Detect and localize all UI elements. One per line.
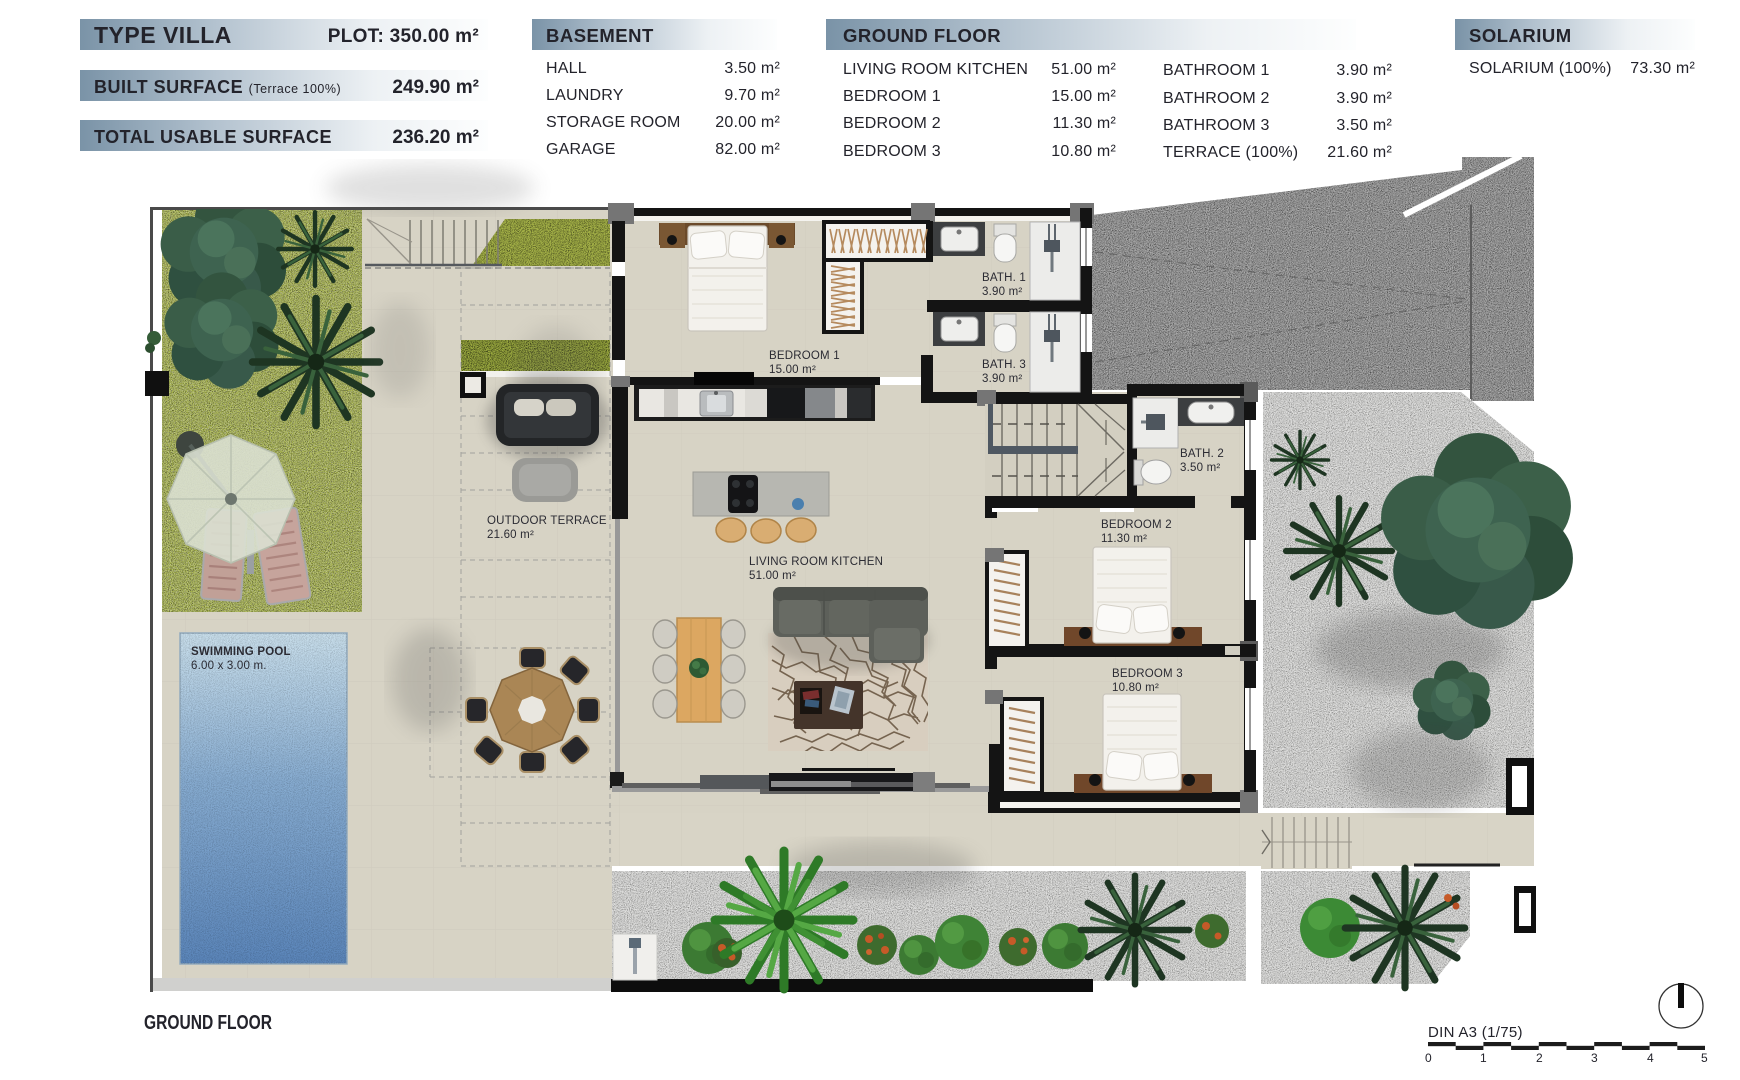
svg-text:20.00 m²: 20.00 m² xyxy=(715,114,780,131)
svg-text:BEDROOM 3: BEDROOM 3 xyxy=(1112,668,1183,680)
svg-text:249.90 m²: 249.90 m² xyxy=(392,77,479,98)
svg-text:3.50 m²: 3.50 m² xyxy=(1336,117,1392,134)
svg-text:LIVING ROOM KITCHEN: LIVING ROOM KITCHEN xyxy=(843,61,1028,78)
svg-text:GROUND FLOOR: GROUND FLOOR xyxy=(843,25,1001,46)
svg-text:BEDROOM 3: BEDROOM 3 xyxy=(843,143,941,160)
svg-text:4: 4 xyxy=(1647,1051,1654,1065)
svg-text:DIN A3 (1/75): DIN A3 (1/75) xyxy=(1428,1024,1523,1041)
svg-text:21.60 m²: 21.60 m² xyxy=(487,529,534,541)
svg-text:HALL: HALL xyxy=(546,60,587,77)
svg-text:BASEMENT: BASEMENT xyxy=(546,25,654,46)
svg-text:SOLARIUM (100%): SOLARIUM (100%) xyxy=(1469,60,1612,77)
svg-text:BATHROOM 2: BATHROOM 2 xyxy=(1163,90,1270,107)
svg-text:BEDROOM 2: BEDROOM 2 xyxy=(1101,519,1172,531)
svg-text:51.00 m²: 51.00 m² xyxy=(1051,61,1116,78)
svg-text:11.30 m²: 11.30 m² xyxy=(1101,533,1147,545)
svg-text:236.20 m²: 236.20 m² xyxy=(392,127,479,148)
svg-text:21.60 m²: 21.60 m² xyxy=(1327,144,1392,161)
svg-text:SOLARIUM: SOLARIUM xyxy=(1469,25,1572,46)
svg-text:BATH. 1: BATH. 1 xyxy=(982,272,1026,284)
svg-text:15.00 m²: 15.00 m² xyxy=(1051,88,1116,105)
svg-text:6.00 x 3.00 m.: 6.00 x 3.00 m. xyxy=(191,660,267,672)
svg-text:STORAGE ROOM: STORAGE ROOM xyxy=(546,114,681,131)
svg-text:1: 1 xyxy=(1480,1051,1487,1065)
svg-text:3.90 m²: 3.90 m² xyxy=(982,286,1022,298)
svg-text:BEDROOM 2: BEDROOM 2 xyxy=(843,115,941,132)
svg-text:TOTAL USABLE SURFACE: TOTAL USABLE SURFACE xyxy=(94,127,332,147)
svg-text:5: 5 xyxy=(1701,1051,1708,1065)
svg-text:82.00 m²: 82.00 m² xyxy=(715,141,780,158)
svg-text:TERRACE (100%): TERRACE (100%) xyxy=(1163,144,1298,161)
svg-text:51.00 m²: 51.00 m² xyxy=(749,570,796,582)
svg-text:BATH. 2: BATH. 2 xyxy=(1180,448,1224,460)
svg-text:3.90 m²: 3.90 m² xyxy=(982,373,1022,385)
svg-text:0: 0 xyxy=(1425,1051,1432,1065)
svg-text:3.50 m²: 3.50 m² xyxy=(1180,462,1220,474)
svg-text:LAUNDRY: LAUNDRY xyxy=(546,87,624,104)
svg-text:BATHROOM 1: BATHROOM 1 xyxy=(1163,62,1270,79)
svg-text:PLOT: 350.00 m²: PLOT: 350.00 m² xyxy=(328,26,479,47)
svg-text:3.90 m²: 3.90 m² xyxy=(1336,62,1392,79)
svg-text:BEDROOM 1: BEDROOM 1 xyxy=(843,88,941,105)
svg-text:10.80 m²: 10.80 m² xyxy=(1112,682,1159,694)
svg-text:2: 2 xyxy=(1536,1051,1543,1065)
svg-text:LIVING ROOM KITCHEN: LIVING ROOM KITCHEN xyxy=(749,556,883,568)
svg-text:BEDROOM 1: BEDROOM 1 xyxy=(769,350,840,362)
svg-text:11.30 m²: 11.30 m² xyxy=(1052,115,1116,132)
svg-text:BATH. 3: BATH. 3 xyxy=(982,359,1026,371)
svg-text:3.50 m²: 3.50 m² xyxy=(724,60,780,77)
svg-text:GROUND FLOOR: GROUND FLOOR xyxy=(144,1012,272,1034)
svg-text:9.70 m²: 9.70 m² xyxy=(724,87,780,104)
svg-text:3.90 m²: 3.90 m² xyxy=(1336,90,1392,107)
svg-text:GARAGE: GARAGE xyxy=(546,141,616,158)
svg-text:10.80 m²: 10.80 m² xyxy=(1051,143,1116,160)
svg-text:15.00 m²: 15.00 m² xyxy=(769,364,816,376)
svg-text:73.30 m²: 73.30 m² xyxy=(1630,60,1695,77)
svg-text:OUTDOOR TERRACE: OUTDOOR TERRACE xyxy=(487,515,607,527)
svg-text:3: 3 xyxy=(1591,1051,1598,1065)
svg-text:SWIMMING POOL: SWIMMING POOL xyxy=(191,646,291,658)
svg-text:BATHROOM 3: BATHROOM 3 xyxy=(1163,117,1270,134)
svg-text:TYPE VILLA: TYPE VILLA xyxy=(94,22,232,48)
